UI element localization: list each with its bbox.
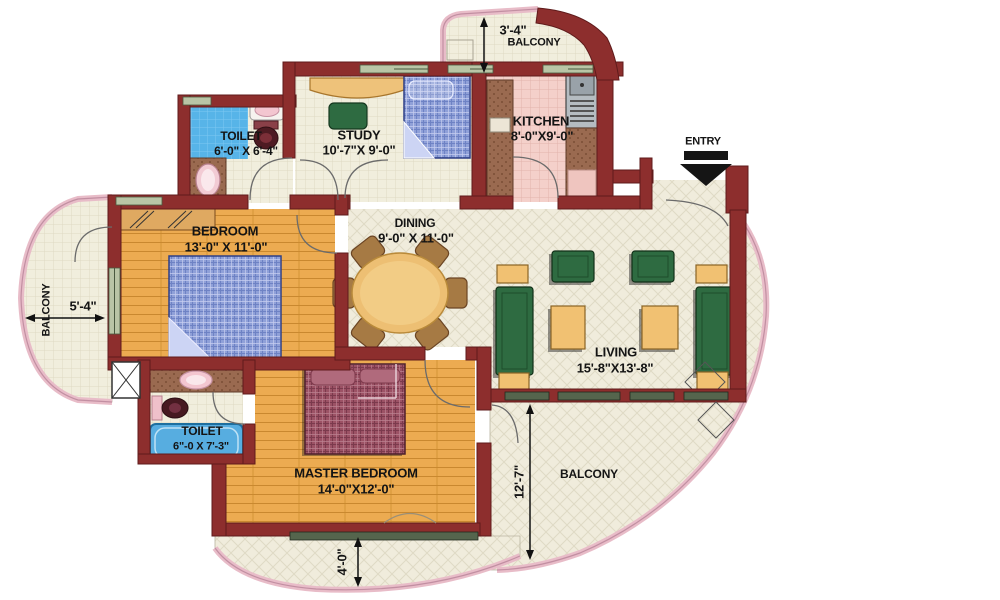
- balcony-left-floor: [21, 197, 112, 402]
- toilet-top-name: TOILET: [220, 130, 261, 142]
- living-dims: 15'-8"X13'-8": [577, 362, 654, 375]
- wc-seat-bottom: [169, 403, 181, 413]
- side-table-2: [696, 265, 727, 283]
- side-table-1: [497, 265, 528, 283]
- wc-seat-top: [260, 133, 272, 143]
- living-name: LIVING: [595, 346, 637, 359]
- entry-label: ENTRY: [685, 137, 721, 148]
- bath-oval-inner-top: [201, 169, 215, 191]
- kitchen-cutting-board: [490, 118, 510, 132]
- coffee-table-2: [642, 306, 678, 349]
- bedroom-name: BEDROOM: [192, 225, 259, 238]
- toilet-bottom-dims: 6"-0 X 7'-3": [173, 442, 229, 453]
- side-table-3: [499, 373, 529, 391]
- kitchen-dims: 8'-0"X9'-0": [511, 130, 574, 143]
- master-pillow-1: [311, 369, 355, 385]
- balcony-bottom-dim: 4'-0": [336, 548, 349, 575]
- kitchen-sink-drain: [580, 83, 584, 87]
- study-chair: [329, 103, 367, 129]
- master-bedroom-dims: 14'-0"X12'-0": [318, 483, 395, 496]
- balcony-top-dim: 3'-4": [499, 24, 526, 37]
- toilet-bottom-name: TOILET: [181, 425, 222, 437]
- study-name: STUDY: [337, 129, 380, 142]
- dining-dims: 9'-0" X 11'-0": [378, 232, 454, 245]
- dining-name: DINING: [395, 217, 436, 229]
- balcony-right-dim: 12'-7": [513, 465, 526, 499]
- toilet-top-dims: 6'-0" X 6'-4": [214, 145, 278, 157]
- master-pillow-2: [360, 369, 400, 383]
- master-furniture: [302, 364, 405, 456]
- master-bedroom-name: MASTER BEDROOM: [294, 467, 418, 480]
- wc-tank-bottom: [152, 396, 162, 420]
- washbasin-bottom-inner: [186, 375, 206, 385]
- coffee-table-1: [551, 306, 585, 349]
- study-bed-pillow: [409, 81, 453, 99]
- floor-plan: 3'-4" BALCONY TOILET 6'-0" X 6'-4" STUDY…: [0, 0, 1000, 600]
- balcony-top-label: BALCONY: [508, 38, 561, 49]
- kitchen-counter-left: [487, 80, 513, 202]
- dining-table-top: [360, 261, 440, 325]
- bedroom-dims: 13'-0" X 11'-0": [185, 241, 268, 254]
- study-dims: 10'-7"X 9'-0": [322, 144, 395, 157]
- balcony-left-dim: 5'-4": [69, 300, 96, 313]
- balcony-left-label: BALCONY: [42, 284, 53, 337]
- entry-floor: [652, 180, 728, 210]
- service-shaft: [112, 362, 140, 398]
- kitchen-name: KITCHEN: [513, 115, 569, 128]
- floor-plan-drawing: [0, 0, 1000, 600]
- balcony-right-label: BALCONY: [560, 468, 618, 480]
